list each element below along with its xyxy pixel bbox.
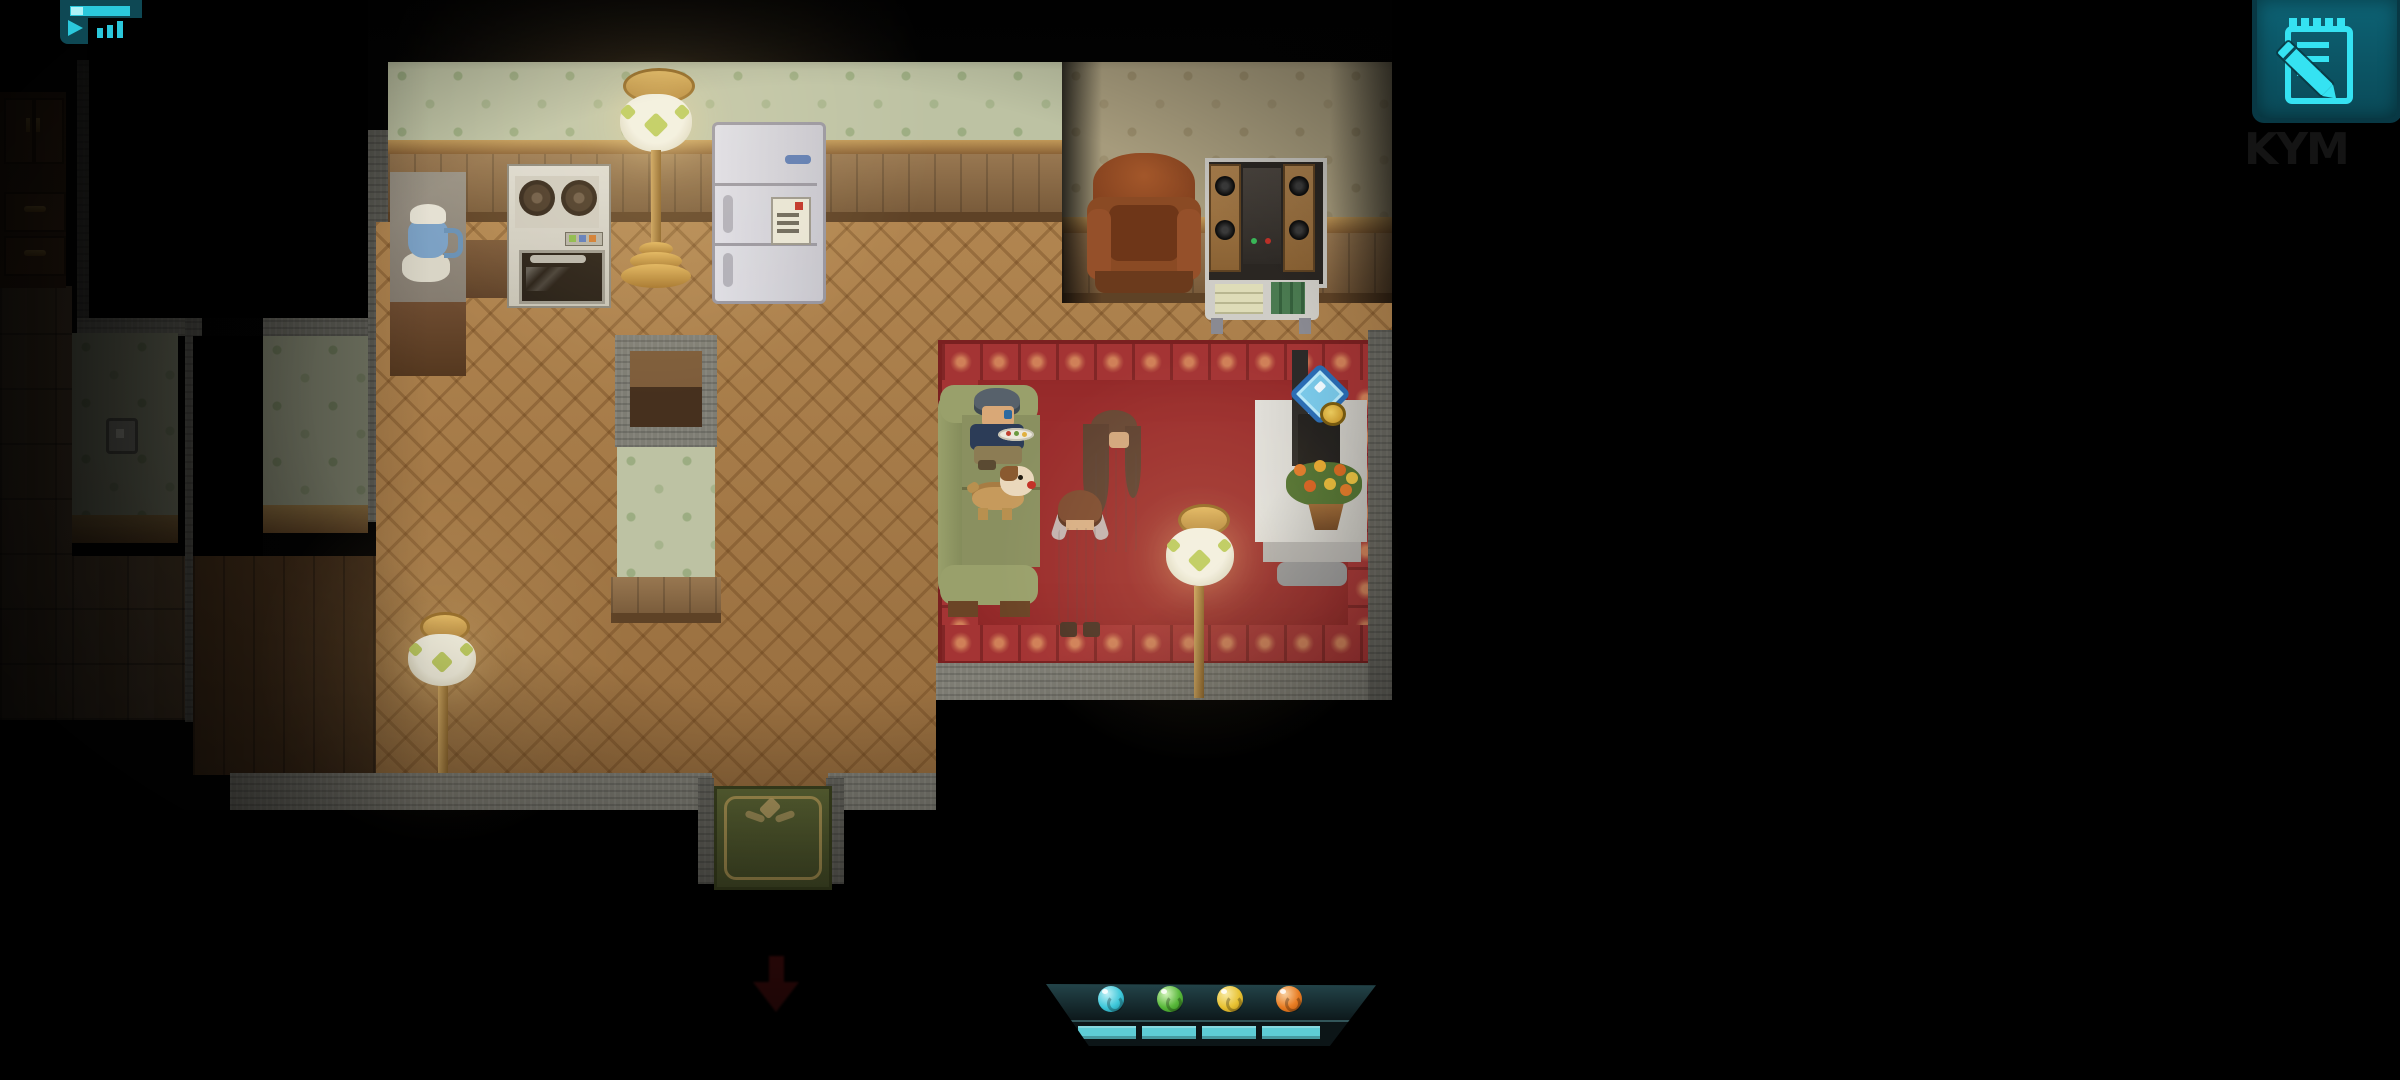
living-lamp-pole bbox=[1194, 586, 1204, 698]
armchair-arm bbox=[1177, 209, 1201, 279]
woman-face bbox=[1109, 432, 1129, 448]
speaker-left bbox=[1209, 164, 1241, 272]
speaker-driver bbox=[1289, 220, 1309, 240]
leather-armchair[interactable] bbox=[1087, 153, 1201, 299]
tile-floor-hallway bbox=[72, 556, 193, 720]
wall-mid-wallpaper bbox=[263, 336, 368, 505]
media-player-indicator[interactable] bbox=[60, 0, 142, 44]
shelf-leg bbox=[1211, 318, 1223, 334]
green-books bbox=[1271, 282, 1305, 314]
hud-panel bbox=[1046, 980, 1376, 1046]
lamp-diamond-motif bbox=[1187, 548, 1211, 572]
flower-pot[interactable] bbox=[1286, 458, 1366, 532]
drawer-handle-icon bbox=[24, 206, 46, 212]
shelf-leg bbox=[1299, 318, 1311, 334]
game-viewport: KYM bbox=[0, 0, 2400, 1080]
armchair-arm bbox=[1087, 209, 1111, 279]
dog-eye bbox=[1018, 475, 1023, 480]
equalizer-bar-icon bbox=[117, 21, 123, 38]
couch-leg bbox=[948, 601, 978, 617]
couch-armrest-bottom bbox=[940, 565, 1038, 605]
niche-column-wallpaper bbox=[617, 447, 715, 579]
armchair-skirt bbox=[1095, 271, 1193, 293]
kitchen-counter-front bbox=[390, 302, 466, 376]
table-foot bbox=[1277, 562, 1347, 586]
coffee-pot[interactable] bbox=[408, 220, 448, 258]
lamp-diamond-motif bbox=[643, 112, 668, 137]
oven-handle bbox=[530, 255, 586, 263]
door-jamb bbox=[698, 778, 714, 884]
hud-bar-orange bbox=[1262, 1026, 1320, 1039]
speaker-driver bbox=[1289, 176, 1309, 196]
living-south-wall bbox=[936, 663, 1392, 703]
child-shoe bbox=[1060, 622, 1077, 637]
orange-orb bbox=[1276, 986, 1302, 1012]
pot-handle bbox=[444, 228, 463, 258]
flowers bbox=[1294, 464, 1306, 476]
lamp-base bbox=[621, 264, 691, 288]
table-base bbox=[1263, 542, 1361, 562]
child-pajamas bbox=[1058, 528, 1102, 624]
panel-row bbox=[777, 229, 799, 233]
wooden-dresser bbox=[0, 92, 66, 288]
drawer-handle-icon bbox=[24, 250, 46, 256]
living-floor-lamp[interactable] bbox=[1166, 528, 1234, 586]
arrow-stem bbox=[769, 956, 784, 984]
kitchen-south-wall bbox=[828, 773, 940, 813]
kitchen-south-wall bbox=[230, 773, 712, 813]
oven-window bbox=[519, 250, 605, 304]
stove-burner bbox=[561, 180, 597, 216]
refrigerator[interactable] bbox=[712, 122, 826, 304]
fridge-handle bbox=[723, 195, 733, 233]
wall-mid-trim bbox=[263, 505, 368, 533]
stove[interactable] bbox=[507, 164, 611, 308]
stone-wall-top bbox=[263, 318, 370, 336]
down-arrow-indicator bbox=[750, 954, 802, 1018]
fridge-handle bbox=[723, 253, 733, 287]
panel-row bbox=[777, 213, 799, 217]
speaker-driver bbox=[1215, 176, 1235, 196]
light-switch[interactable] bbox=[106, 418, 138, 454]
dog-leg bbox=[1002, 508, 1012, 520]
carpet-border-bottom bbox=[942, 625, 1384, 661]
stone-wall-edge bbox=[77, 60, 89, 318]
kitchen-floor-lamp[interactable] bbox=[620, 94, 692, 152]
panel-red-button bbox=[795, 202, 803, 210]
sparkle-glint bbox=[1314, 381, 1327, 394]
dresser-handle-icon bbox=[36, 118, 40, 132]
stove-controls bbox=[565, 232, 603, 246]
dog-head bbox=[1000, 466, 1034, 496]
dog-nose bbox=[1027, 481, 1036, 489]
cyan-orb bbox=[1098, 986, 1124, 1012]
stove-button-blue bbox=[579, 235, 586, 242]
green-doormat[interactable] bbox=[714, 786, 832, 890]
oven-glass-glare bbox=[526, 267, 578, 291]
yellow-orb bbox=[1217, 986, 1243, 1012]
equalizer-bar-icon bbox=[97, 28, 103, 38]
stove-burner bbox=[519, 180, 555, 216]
dresser-handle-icon bbox=[26, 118, 30, 132]
stove-button-orange bbox=[589, 235, 596, 242]
pencil-band-icon bbox=[2283, 47, 2296, 61]
hud-bar-yellow bbox=[1202, 1026, 1256, 1039]
coffee-pot-lid bbox=[410, 204, 446, 224]
plate-of-food bbox=[998, 428, 1034, 441]
equalizer-bar-icon bbox=[107, 25, 113, 38]
stereo-shelf[interactable] bbox=[1205, 158, 1319, 320]
south-floor-lamp[interactable] bbox=[408, 634, 476, 686]
play-triangle-icon bbox=[68, 20, 83, 36]
stereo-receiver bbox=[1243, 168, 1281, 264]
living-east-wall bbox=[1368, 330, 1392, 703]
stove-button-green bbox=[569, 235, 576, 242]
wall-left-trim bbox=[72, 515, 178, 543]
notepad-line-icon bbox=[2297, 42, 2329, 48]
fridge-logo-label bbox=[785, 155, 811, 164]
hud-bar-cyan bbox=[1078, 1026, 1136, 1039]
dark-room bbox=[87, 0, 368, 318]
notepad-binding-icon bbox=[2289, 18, 2297, 28]
shelf-lower bbox=[1205, 280, 1319, 320]
child-shoe bbox=[1083, 622, 1100, 637]
plank-floor-hall bbox=[193, 556, 390, 775]
child[interactable] bbox=[1050, 490, 1110, 644]
dog[interactable] bbox=[972, 466, 1040, 524]
green-orb bbox=[1157, 986, 1183, 1012]
dresser-drawer bbox=[4, 192, 66, 232]
light-switch-toggle bbox=[116, 429, 124, 438]
receiver-led-green bbox=[1251, 238, 1257, 244]
fridge-divider bbox=[715, 183, 817, 186]
speaker-right bbox=[1283, 164, 1315, 272]
counter-step bbox=[466, 240, 511, 298]
watermark-text: KYM bbox=[2244, 124, 2348, 175]
receiver-led-red bbox=[1265, 238, 1271, 244]
niche-column-base bbox=[611, 613, 721, 623]
dog-leg bbox=[978, 508, 988, 520]
pot bbox=[1306, 504, 1346, 530]
lamp-diamond-motif bbox=[431, 651, 454, 674]
hud-bar-green bbox=[1142, 1026, 1196, 1039]
south-lamp-pole bbox=[438, 686, 448, 776]
boy-eye bbox=[1004, 410, 1012, 419]
panel-row bbox=[777, 221, 799, 225]
kitchen-lamp-pole bbox=[651, 150, 661, 246]
dresser-drawer bbox=[4, 236, 66, 276]
wall-niche-frame[interactable] bbox=[615, 335, 717, 447]
dog-ear-patch bbox=[1000, 466, 1018, 481]
boy-face bbox=[982, 406, 1014, 426]
arrow-head bbox=[753, 982, 799, 1012]
speaker-driver bbox=[1215, 220, 1235, 240]
fridge-control-panel bbox=[771, 197, 811, 245]
folded-towels bbox=[1215, 284, 1263, 314]
tile-floor-left bbox=[0, 286, 72, 720]
journal-notepad-button[interactable] bbox=[2252, 0, 2400, 123]
magnifier-badge-icon bbox=[1320, 402, 1346, 426]
progress-cap-icon bbox=[71, 7, 83, 15]
dark-doorway[interactable] bbox=[193, 336, 263, 556]
food-bits bbox=[1006, 431, 1011, 436]
couch-leg bbox=[1000, 601, 1030, 617]
niche-lower bbox=[630, 387, 702, 427]
niche-column-wainscot bbox=[611, 577, 721, 615]
armchair-seat bbox=[1109, 205, 1179, 261]
